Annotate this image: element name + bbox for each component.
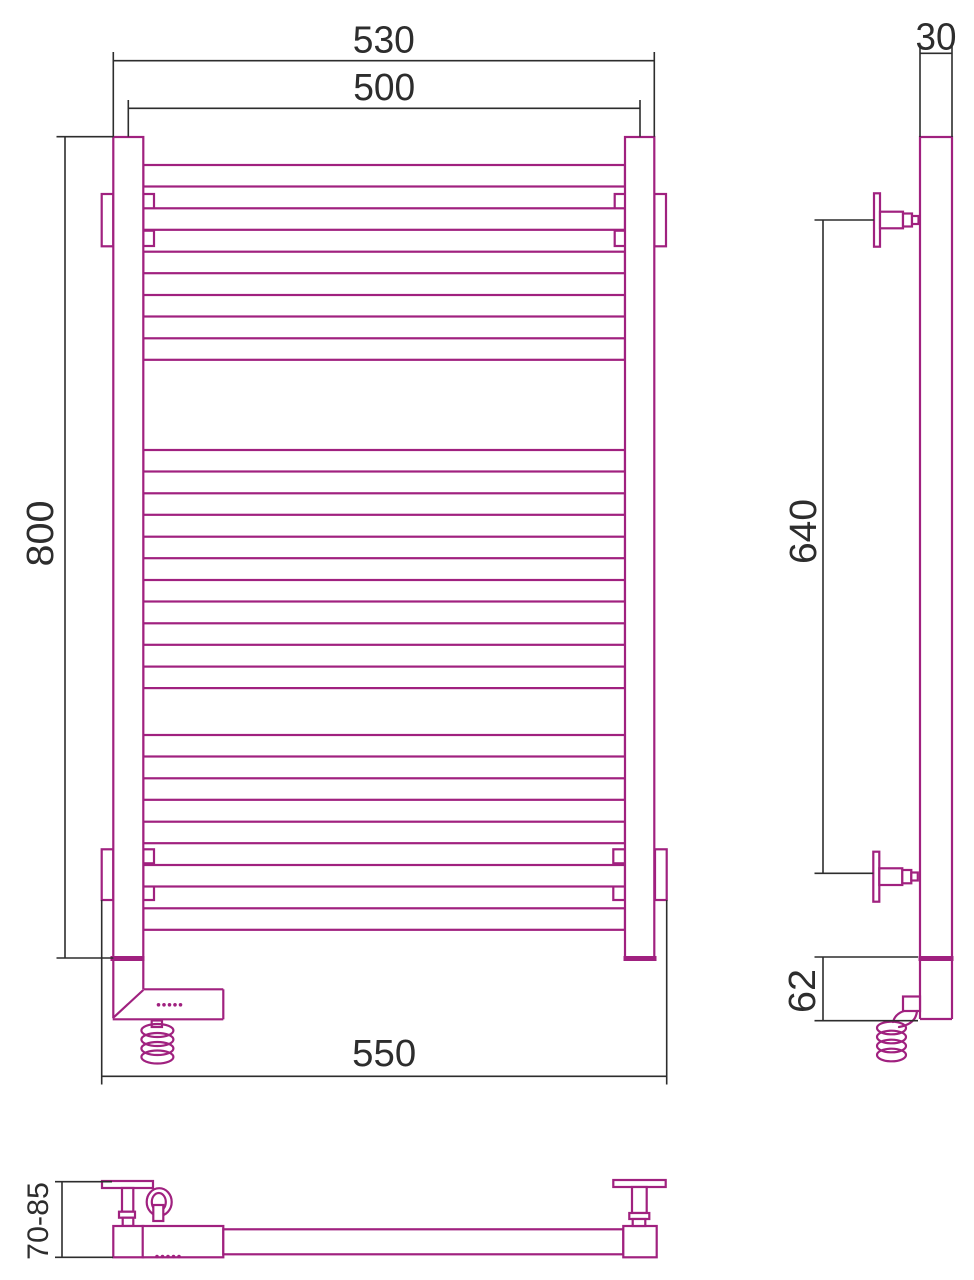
indicator-dot: [172, 1255, 176, 1259]
wall-bracket-side-top-nut: [903, 214, 912, 227]
rung: [143, 667, 625, 689]
indicator-dot: [168, 1003, 172, 1007]
rung: [143, 735, 625, 757]
power-cable-coil: [877, 1049, 906, 1062]
power-cable-coil: [141, 1051, 173, 1064]
indicator-dot: [161, 1255, 165, 1259]
post-plan-right: [623, 1226, 656, 1257]
rung: [143, 865, 625, 887]
dim-label-front-axis_width: 500: [353, 67, 415, 109]
bracket-tab: [615, 194, 626, 209]
indicator-dot: [162, 1003, 166, 1007]
drawing-canvas: 530500800550306406270-85: [0, 0, 974, 1280]
collector-bar-plan: [223, 1229, 623, 1254]
dim-label-side-bottom_offset: 62: [782, 969, 824, 1013]
technical-drawing: 530500800550306406270-85: [0, 0, 974, 1280]
wall-bracket-plan-right-stem: [632, 1187, 647, 1213]
front-view: [102, 137, 667, 1064]
heater-housing-plan: [143, 1226, 224, 1257]
rung: [143, 295, 625, 317]
wall-bracket-side-bottom-nut: [902, 870, 911, 883]
cable-elbow: [903, 997, 920, 1012]
wall-bracket-front-top-left: [102, 194, 114, 246]
dim-label-side-bracket_spacing: 640: [783, 499, 825, 564]
rung: [143, 450, 625, 472]
heater-bevel: [113, 990, 143, 1018]
dim-label-front-bracket_span: 550: [352, 1033, 416, 1075]
wall-bracket-plan-left-foot: [123, 1218, 134, 1226]
wall-bracket-front-bottom-left: [102, 849, 114, 900]
indicator-dot: [173, 1003, 177, 1007]
indicator-dot: [157, 1003, 161, 1007]
rung: [143, 908, 625, 930]
rung: [143, 537, 625, 559]
wall-bracket-plan-right-foot: [633, 1219, 646, 1226]
rung: [143, 580, 625, 602]
rung: [143, 623, 625, 645]
wall-bracket-side-bottom-stem: [879, 868, 902, 885]
post-plan-left: [113, 1226, 143, 1257]
indicator-dot: [177, 1255, 181, 1259]
dim-label-front-height: 800: [20, 501, 62, 567]
rung: [143, 252, 625, 274]
indicator-dot: [166, 1255, 170, 1259]
post-profile: [920, 137, 952, 958]
dim-label-front-outer_width: 530: [353, 20, 415, 62]
wall-bracket-plan-left-stem: [122, 1188, 133, 1212]
bracket-tab: [615, 231, 626, 246]
side-view: [873, 137, 953, 1061]
wall-bracket-front-top-right: [654, 194, 666, 246]
cable-gland: [153, 1205, 163, 1221]
bracket-tab: [143, 886, 154, 900]
rung: [143, 165, 625, 187]
wall-bracket-side-top-stem: [880, 212, 903, 229]
right-post: [625, 137, 654, 958]
dim-label-bottom-wall_clearance: 70-85: [22, 1182, 55, 1260]
wall-bracket-side-bottom-nut: [911, 873, 918, 881]
indicator-dot: [179, 1003, 183, 1007]
rung: [143, 208, 625, 230]
bottom-view: [102, 1180, 666, 1258]
bracket-tab: [143, 849, 154, 863]
bracket-tab: [143, 231, 154, 246]
rung: [143, 493, 625, 515]
rung: [143, 822, 625, 844]
wall-bracket-side-top-nut: [912, 216, 919, 224]
rung: [143, 338, 625, 360]
rung: [143, 778, 625, 800]
indicator-dot: [155, 1255, 159, 1259]
bracket-tab: [613, 849, 625, 863]
bracket-tab: [613, 886, 625, 900]
bracket-tab: [143, 194, 154, 209]
left-post: [113, 137, 143, 958]
wall-bracket-front-bottom-right: [655, 849, 667, 900]
dim-label-side-profile_depth: 30: [916, 17, 957, 59]
